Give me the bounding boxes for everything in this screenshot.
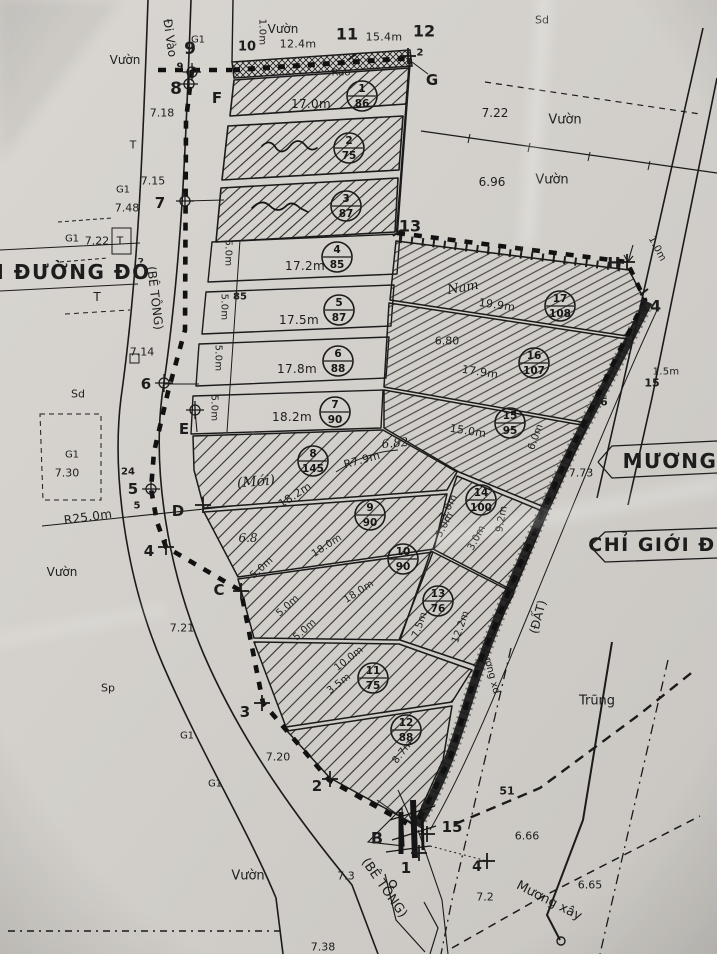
- map-canvas: 1862753874855876887908145990109011751288…: [0, 0, 717, 954]
- scanned-cadastral-map: 1862753874855876887908145990109011751288…: [0, 0, 717, 954]
- scan-vignette: [0, 0, 717, 954]
